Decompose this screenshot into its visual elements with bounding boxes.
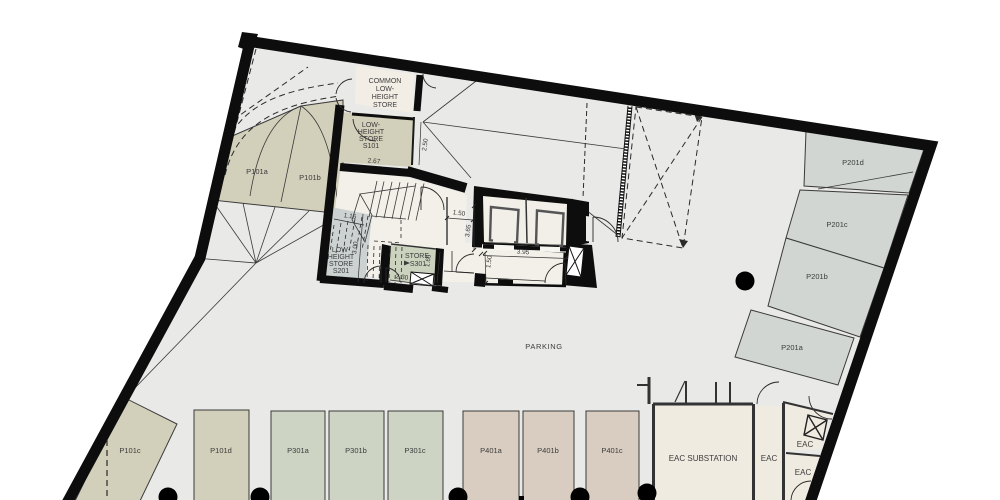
svg-text:HEIGHT: HEIGHT: [372, 94, 399, 101]
svg-text:P401b: P401b: [537, 446, 559, 455]
svg-text:P301b: P301b: [345, 446, 367, 455]
svg-text:P201c: P201c: [826, 220, 848, 229]
svg-text:P101b: P101b: [299, 173, 321, 182]
svg-text:P101c: P101c: [119, 446, 141, 455]
svg-text:HEIGHT: HEIGHT: [328, 254, 355, 261]
svg-text:STORE: STORE: [329, 261, 353, 268]
svg-text:PARKING: PARKING: [525, 342, 562, 351]
svg-text:P201b: P201b: [806, 272, 828, 281]
svg-text:2.67: 2.67: [367, 157, 381, 165]
svg-text:S201: S201: [333, 268, 349, 275]
svg-text:P301a: P301a: [287, 446, 310, 455]
svg-text:P401c: P401c: [601, 446, 623, 455]
svg-text:HEIGHT: HEIGHT: [358, 129, 385, 136]
svg-text:P201d: P201d: [842, 158, 864, 167]
svg-text:3.95: 3.95: [516, 249, 529, 257]
svg-text:P101d: P101d: [210, 446, 232, 455]
svg-text:COMMON: COMMON: [369, 78, 402, 85]
svg-text:P201a: P201a: [781, 343, 804, 352]
svg-text:LOW-: LOW-: [332, 247, 351, 254]
svg-text:P101a: P101a: [246, 167, 269, 176]
svg-text:STORE: STORE: [359, 136, 383, 143]
svg-text:LOW-: LOW-: [362, 122, 381, 129]
svg-text:EAC: EAC: [761, 454, 778, 463]
svg-text:EAC SUBSTATION: EAC SUBSTATION: [669, 454, 738, 463]
svg-text:P401a: P401a: [480, 446, 503, 455]
svg-text:STORE: STORE: [373, 102, 397, 109]
svg-text:EAC: EAC: [797, 440, 814, 449]
svg-text:P301c: P301c: [404, 446, 426, 455]
svg-text:S101: S101: [363, 143, 379, 150]
svg-text:EAC: EAC: [795, 468, 812, 477]
svg-text:LOW-: LOW-: [376, 86, 395, 93]
